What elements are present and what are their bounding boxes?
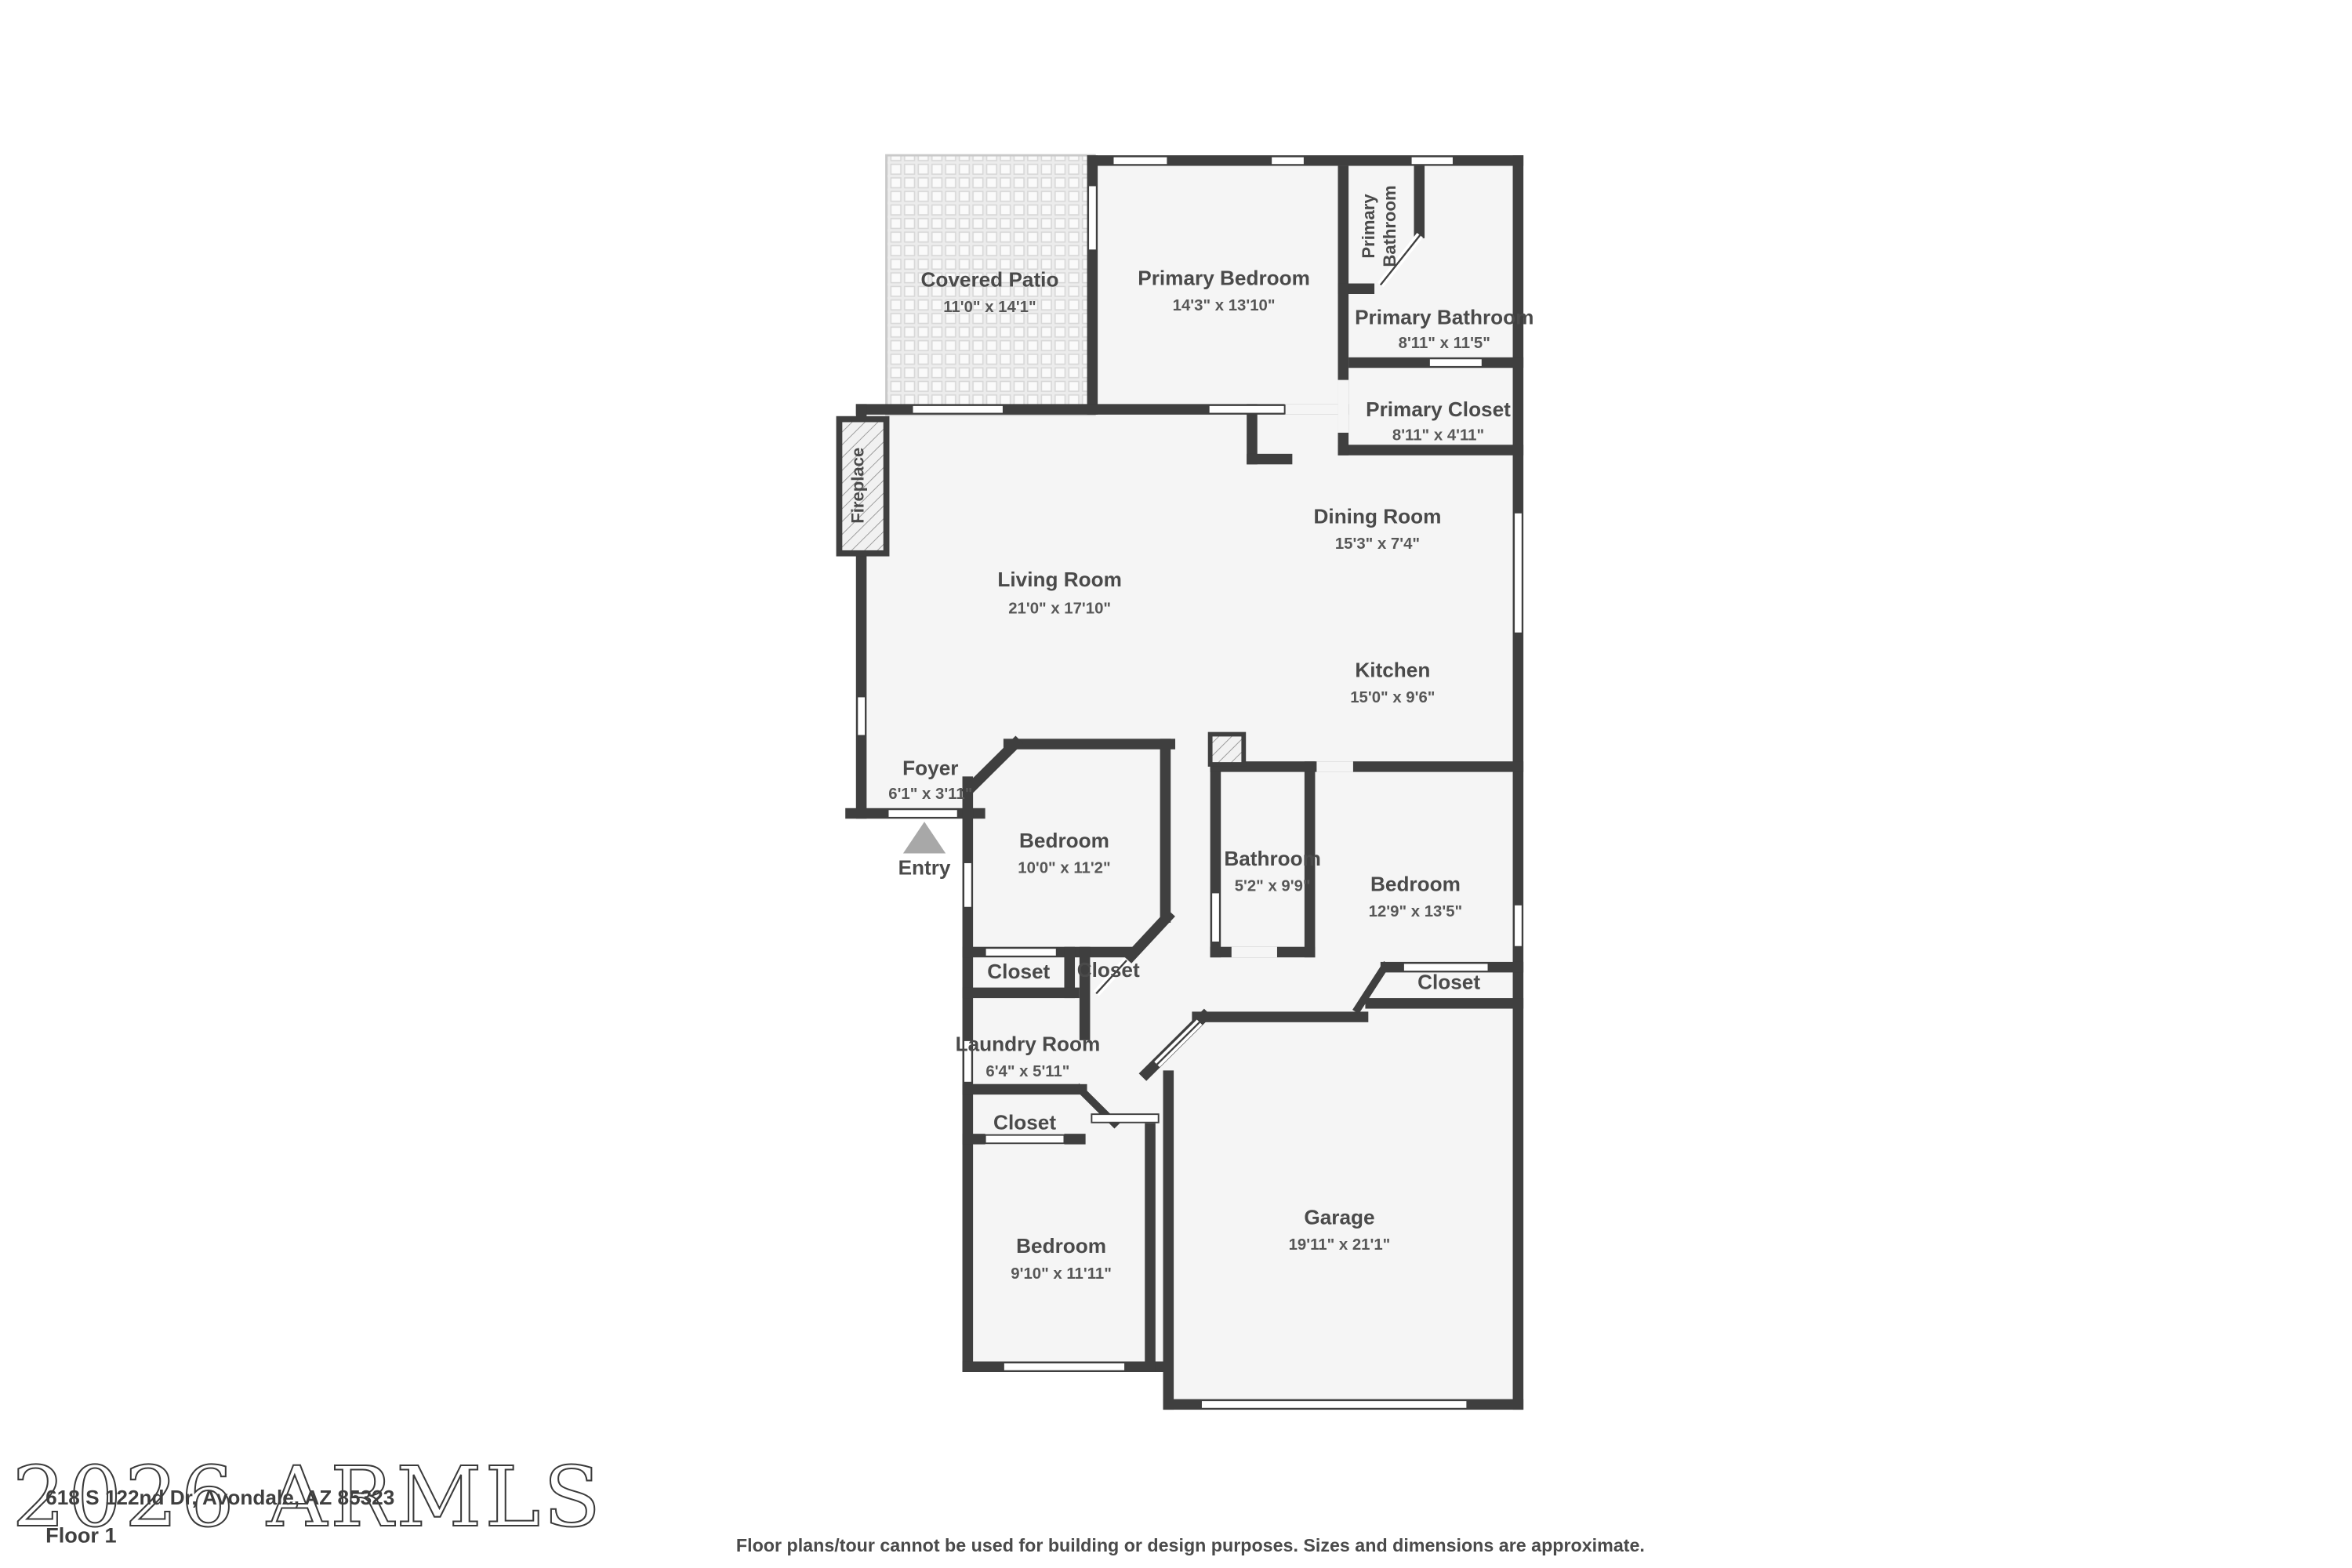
footer: 2026 ARMLS 618 S 122nd Dr, Avondale, AZ … — [13, 1450, 1645, 1555]
room-closet-d: Closet — [1417, 971, 1480, 994]
room-laundry-dims: 6'4" x 5'11" — [985, 1063, 1069, 1080]
room-covered-patio: Covered Patio — [920, 267, 1058, 291]
entry-label: Entry — [898, 855, 951, 879]
room-covered-patio-dims: 11'0" x 14'1" — [943, 299, 1036, 316]
floor-plan-canvas: Fireplace Covered Patio 11'0" x 14'1" Pr… — [0, 0, 2352, 1568]
room-garage: Garage — [1304, 1206, 1374, 1229]
room-primary-bathroom-dims: 8'11" x 11'5" — [1399, 335, 1490, 352]
room-bathroom-2-dims: 5'2" x 9'9" — [1235, 878, 1311, 895]
room-primary-bedroom-dims: 14'3" x 13'10" — [1173, 297, 1276, 314]
room-bedroom-4: Bedroom — [1016, 1234, 1106, 1258]
fireplace-label: Fireplace — [848, 448, 867, 524]
address-text: 618 S 122nd Dr, Avondale, AZ 85323 — [45, 1486, 394, 1509]
room-bedroom-3-dims: 12'9" x 13'5" — [1369, 903, 1463, 920]
room-primary-bedroom: Primary Bedroom — [1138, 267, 1310, 290]
room-primary-bathroom-upper-line2: Bathroom — [1380, 185, 1399, 267]
room-bedroom-4-dims: 9'10" x 11'11" — [1011, 1265, 1112, 1283]
room-primary-bathroom-upper-line1: Primary — [1359, 194, 1378, 259]
room-bedroom-2: Bedroom — [1019, 829, 1109, 852]
floor-label: Floor 1 — [45, 1523, 116, 1547]
room-living-dims: 21'0" x 17'10" — [1008, 601, 1111, 618]
room-primary-closet-dims: 8'11" x 4'11" — [1392, 427, 1484, 445]
room-dining-dims: 15'3" x 7'4" — [1335, 535, 1420, 553]
room-foyer: Foyer — [902, 757, 958, 780]
water-heater — [1210, 735, 1244, 764]
room-kitchen-dims: 15'0" x 9'6" — [1350, 689, 1435, 706]
disclaimer-text: Floor plans/tour cannot be used for buil… — [736, 1535, 1645, 1555]
room-living: Living Room — [997, 568, 1121, 591]
room-closet-c: Closet — [993, 1110, 1056, 1134]
room-bedroom-3: Bedroom — [1370, 873, 1461, 896]
room-bathroom-2: Bathroom — [1224, 847, 1321, 870]
room-bedroom-2-dims: 10'0" x 11'2" — [1018, 860, 1110, 877]
room-primary-closet: Primary Closet — [1366, 397, 1511, 421]
entry-arrow-icon — [903, 822, 946, 853]
room-kitchen: Kitchen — [1355, 659, 1430, 682]
room-closet-a: Closet — [987, 960, 1050, 983]
room-dining: Dining Room — [1314, 504, 1442, 528]
fireplace: Fireplace — [839, 419, 886, 554]
room-closet-b: Closet — [1077, 958, 1140, 982]
room-primary-bathroom: Primary Bathroom — [1355, 306, 1534, 329]
room-laundry: Laundry Room — [956, 1032, 1101, 1055]
room-garage-dims: 19'11" x 21'1" — [1289, 1236, 1391, 1254]
room-foyer-dims: 6'1" x 3'11" — [888, 786, 972, 803]
